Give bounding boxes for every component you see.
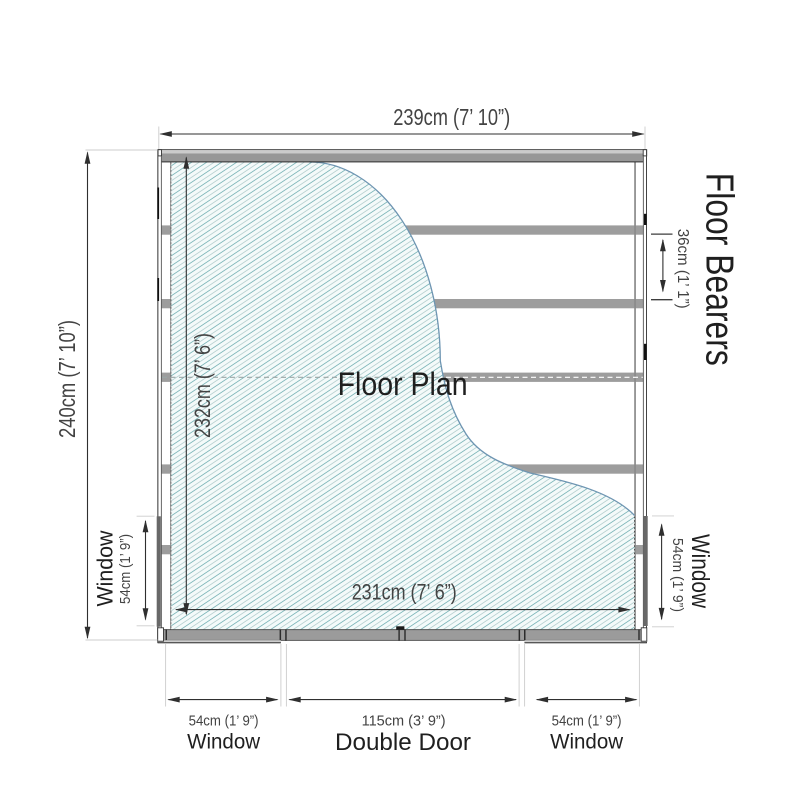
svg-text:54cm (1’ 9”): 54cm (1’ 9”) [552,712,622,729]
svg-text:Window: Window [92,530,117,606]
svg-text:115cm (3’ 9”): 115cm (3’ 9”) [362,713,446,730]
svg-text:Floor Plan: Floor Plan [338,366,468,402]
svg-text:Window: Window [550,731,624,754]
svg-text:Double Door: Double Door [335,729,471,756]
svg-text:54cm (1’ 9”): 54cm (1’ 9”) [669,538,686,612]
svg-text:Window: Window [187,731,261,754]
svg-text:36cm (1’ 1”): 36cm (1’ 1”) [674,229,691,309]
svg-text:232cm (7’ 6”): 232cm (7’ 6”) [190,333,215,438]
svg-text:239cm (7’ 10”): 239cm (7’ 10”) [393,104,510,130]
svg-text:54cm (1’ 9”): 54cm (1’ 9”) [189,712,259,729]
svg-text:54cm (1’ 9”): 54cm (1’ 9”) [117,534,134,604]
svg-text:Window: Window [686,534,714,609]
svg-text:231cm (7’ 6”): 231cm (7’ 6”) [352,580,457,605]
svg-text:240cm (7’ 10”): 240cm (7’ 10”) [54,320,80,438]
svg-text:Floor Bearers: Floor Bearers [697,173,740,366]
